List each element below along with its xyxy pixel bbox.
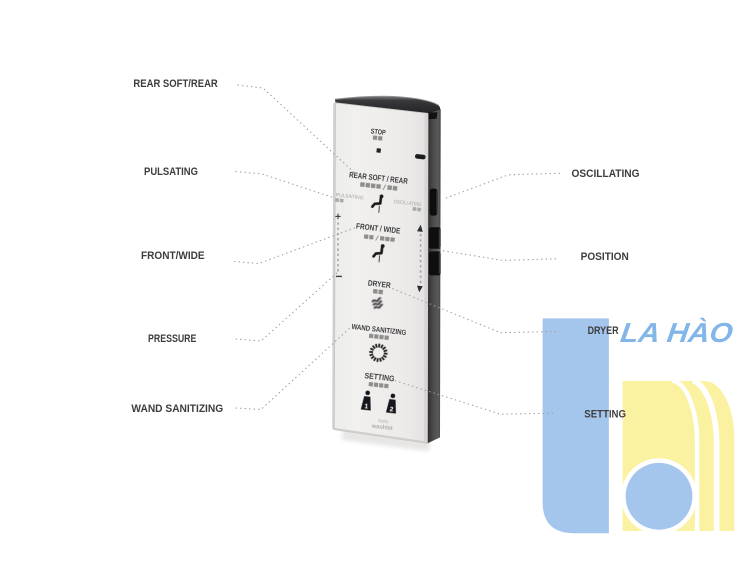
svg-text:DRYER: DRYER [588, 325, 619, 337]
svg-text:OSCILLATING: OSCILLATING [572, 168, 640, 180]
svg-text:WAND SANITIZING: WAND SANITIZING [131, 403, 223, 415]
svg-text:POSITION: POSITION [581, 251, 629, 263]
svg-text:REAR SOFT/REAR: REAR SOFT/REAR [133, 78, 218, 90]
svg-text:STOP: STOP [370, 126, 386, 137]
svg-text:FRONT/WIDE: FRONT/WIDE [141, 250, 205, 262]
svg-text:PULSATING: PULSATING [144, 166, 198, 178]
svg-text:LA HÀO: LA HÀO [619, 317, 736, 348]
svg-text:SETTING: SETTING [584, 409, 626, 421]
svg-text:PRESSURE: PRESSURE [148, 333, 196, 345]
